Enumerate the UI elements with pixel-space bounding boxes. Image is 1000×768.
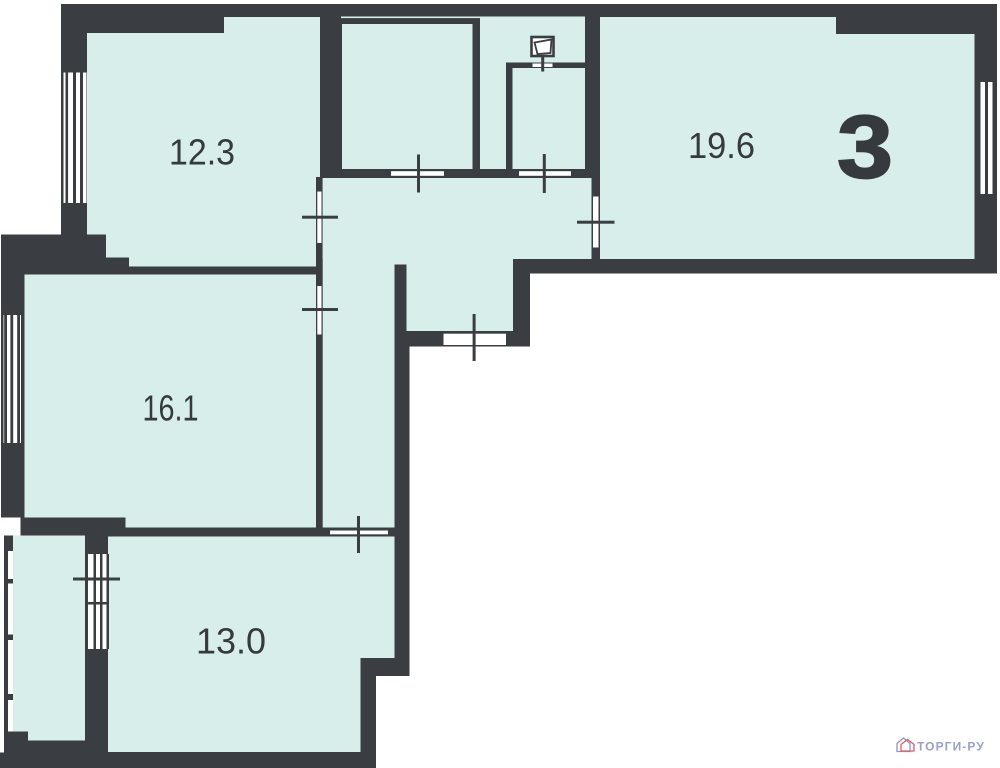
svg-text:16.1: 16.1 <box>143 388 199 429</box>
svg-text:19.6: 19.6 <box>688 125 755 166</box>
svg-text:12.3: 12.3 <box>169 132 235 173</box>
svg-text:13.0: 13.0 <box>196 621 266 662</box>
svg-text:ТОРГИ-РУ: ТОРГИ-РУ <box>917 740 985 754</box>
svg-text:3: 3 <box>837 97 893 197</box>
